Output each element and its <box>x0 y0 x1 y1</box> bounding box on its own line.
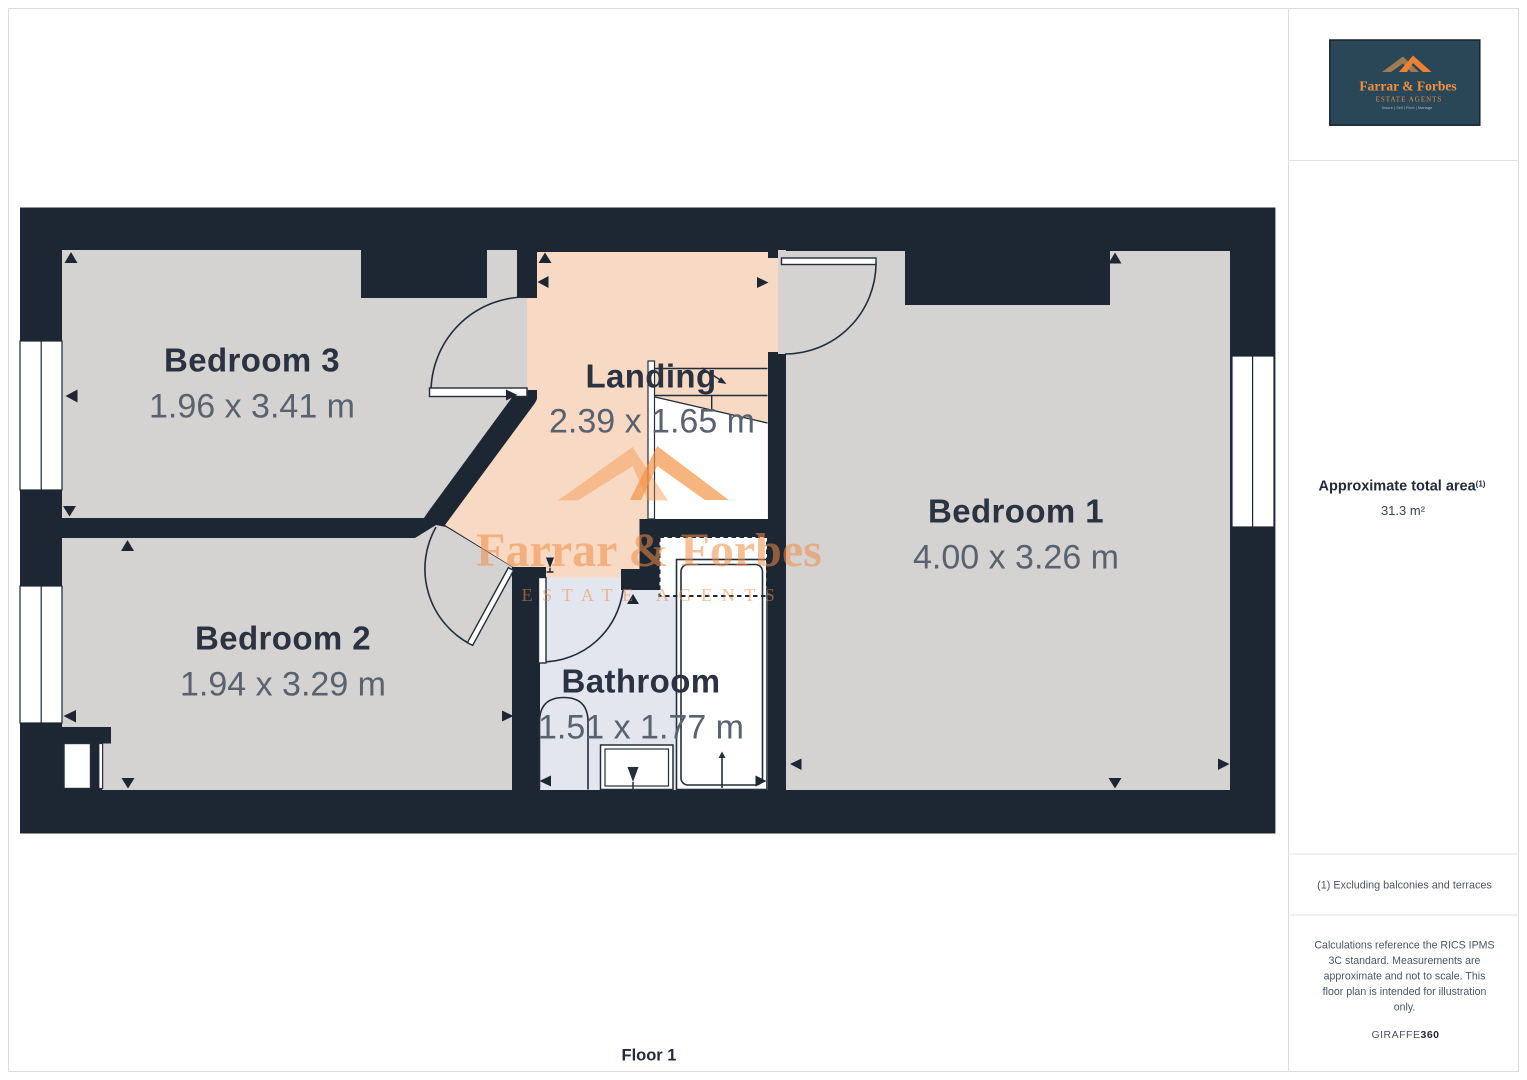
svg-text:4.00 x 3.26 m: 4.00 x 3.26 m <box>913 539 1119 577</box>
svg-text:Bedroom 2: Bedroom 2 <box>195 620 371 657</box>
svg-text:ESTATE AGENTS: ESTATE AGENTS <box>522 585 785 605</box>
svg-text:Bedroom 1: Bedroom 1 <box>928 493 1104 530</box>
svg-text:2.39 x 1.65 m: 2.39 x 1.65 m <box>549 403 755 441</box>
svg-text:GIRAFFE360: GIRAFFE360 <box>1371 1029 1439 1041</box>
svg-text:only.: only. <box>1394 1002 1416 1014</box>
svg-text:Farrar & Forbes: Farrar & Forbes <box>476 524 822 577</box>
svg-text:31.3 m²: 31.3 m² <box>1381 503 1426 518</box>
svg-text:1.51 x 1.77 m: 1.51 x 1.77 m <box>538 709 744 747</box>
svg-text:Floor 1: Floor 1 <box>621 1047 676 1065</box>
svg-text:floor plan is intended for ill: floor plan is intended for illustration <box>1323 986 1487 998</box>
svg-text:approximate and not to scale.: approximate and not to scale. This <box>1324 971 1486 983</box>
svg-text:1.94 x 3.29 m: 1.94 x 3.29 m <box>180 666 386 704</box>
svg-text:Insure | Sell | Rent | Manage: Insure | Sell | Rent | Manage <box>1382 105 1433 110</box>
svg-text:Landing: Landing <box>585 358 716 395</box>
svg-text:Approximate total area(1): Approximate total area(1) <box>1319 479 1486 495</box>
svg-text:Calculations reference the RIC: Calculations reference the RICS IPMS <box>1314 940 1494 952</box>
svg-text:Bedroom 3: Bedroom 3 <box>164 342 340 379</box>
svg-text:ESTATE AGENTS: ESTATE AGENTS <box>1376 96 1443 104</box>
svg-text:Farrar & Forbes: Farrar & Forbes <box>1359 79 1456 94</box>
svg-text:Bathroom: Bathroom <box>561 663 720 700</box>
svg-text:(1) Excluding balconies and te: (1) Excluding balconies and terraces <box>1317 880 1492 892</box>
svg-text:1.96 x 3.41 m: 1.96 x 3.41 m <box>149 388 355 426</box>
svg-text:3C standard. Measurements are: 3C standard. Measurements are <box>1329 955 1481 967</box>
